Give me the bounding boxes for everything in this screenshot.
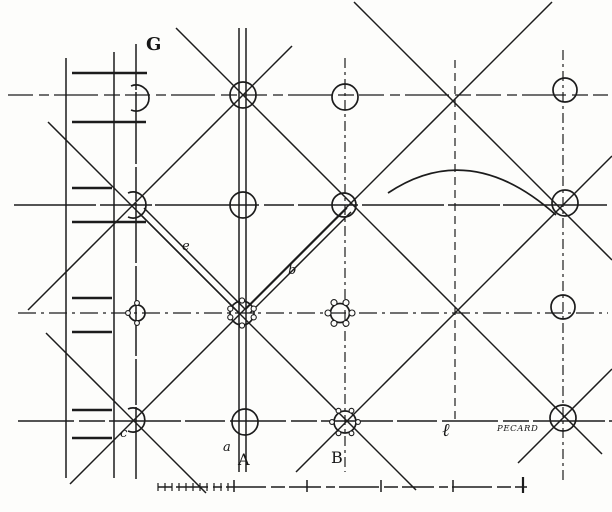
label-A: A bbox=[237, 450, 250, 469]
column-node bbox=[232, 409, 258, 435]
engraver-signature: PECARD bbox=[496, 424, 538, 434]
column-node bbox=[553, 78, 577, 102]
double-strut-members bbox=[139, 208, 351, 314]
row-axes bbox=[8, 95, 612, 421]
plan-drawing: G e b c a A B ℓ PECARD bbox=[0, 0, 612, 512]
label-e: e bbox=[182, 239, 190, 254]
label-G: G bbox=[146, 34, 161, 55]
scale-bar bbox=[158, 477, 527, 493]
label-b: b bbox=[288, 263, 296, 278]
ladder-structure bbox=[66, 52, 147, 478]
diagonal-braces bbox=[28, 2, 612, 493]
label-c: c bbox=[120, 426, 128, 441]
label-l: ℓ bbox=[442, 420, 450, 441]
label-a: a bbox=[223, 440, 231, 455]
column-nodes-row3 bbox=[126, 295, 575, 328]
drawing-canvas: G e b c a A B ℓ PECARD bbox=[0, 0, 612, 512]
column-node bbox=[131, 85, 149, 111]
label-B: B bbox=[331, 448, 343, 467]
swing-arc bbox=[388, 170, 556, 215]
